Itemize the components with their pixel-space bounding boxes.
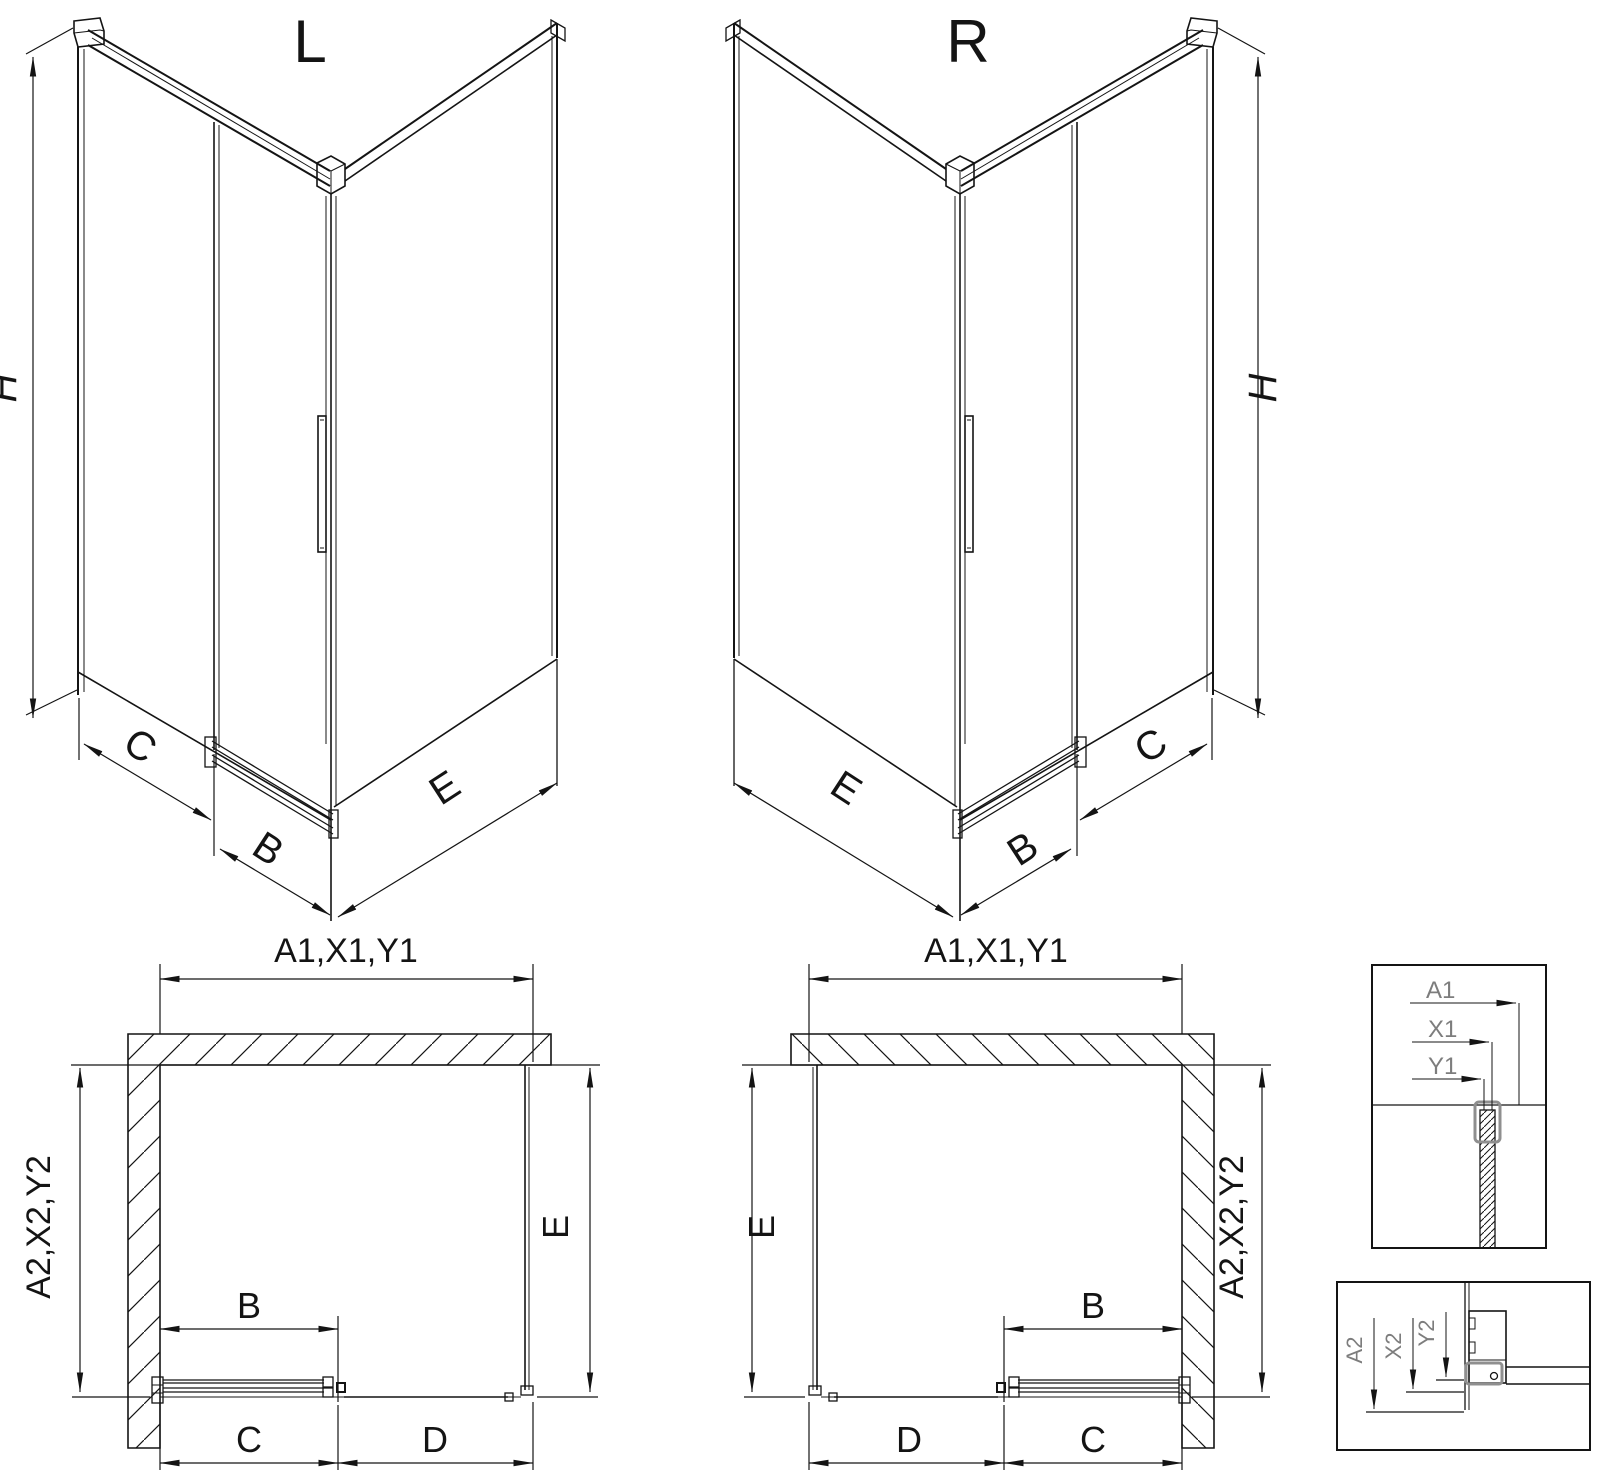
iso-left-side-label: C (116, 720, 164, 773)
plan-view-right: A1,X1,Y1 E A2,X2,Y2 B D C (741, 932, 1271, 1470)
plan-left-fixed-label: C (236, 1419, 262, 1460)
iso-right-side-label: C (1127, 720, 1175, 773)
detail-x1-label: X1 (1428, 1016, 1457, 1043)
detail-a1-label: A1 (1426, 977, 1455, 1004)
plan-right-width-label: A1,X1,Y1 (924, 932, 1068, 970)
plan-left-width-label: A1,X1,Y1 (274, 932, 418, 970)
plan-left-door-label: B (237, 1285, 261, 1326)
detail-width-inset: A1 X1 Y1 (1372, 965, 1546, 1248)
iso-left-height-label: H (0, 373, 25, 402)
detail-x2-label: X2 (1381, 1333, 1406, 1360)
detail-y1-label: Y1 (1428, 1053, 1457, 1080)
iso-left-title: L (293, 8, 326, 75)
detail-a2-label: A2 (1342, 1337, 1367, 1364)
plan-right-return-label: E (741, 1215, 782, 1239)
roller-wheel (1491, 1373, 1498, 1380)
plan-right-fixed-label: C (1080, 1419, 1106, 1460)
iso-right-height-label: H (1241, 373, 1285, 402)
iso-view-left: L H C B E (0, 8, 565, 921)
plan-right-depth-label: A2,X2,Y2 (1213, 1155, 1251, 1299)
plan-view-left: A1,X1,Y1 A2,X2,Y2 E B C D (20, 932, 600, 1470)
plan-left-opening-label: D (422, 1419, 448, 1460)
iso-right-return-label: E (823, 762, 869, 813)
iso-left-door-label: B (245, 823, 291, 874)
plan-right-door-label: B (1081, 1285, 1105, 1326)
plan-left-return-label: E (535, 1215, 576, 1239)
technical-drawing-page: L H C B E R H C B E A1,X1,Y1 A2,X2,Y2 E … (0, 0, 1600, 1474)
iso-right-title: R (946, 8, 989, 75)
detail-frame (1337, 1282, 1590, 1450)
plan-left-depth-label: A2,X2,Y2 (20, 1155, 58, 1299)
iso-view-right: R H C B E (726, 8, 1285, 921)
detail-depth-inset: A2 X2 Y2 (1337, 1282, 1590, 1450)
detail-width-dims (1410, 1003, 1519, 1110)
shower-enclosure-dimension-diagram: L H C B E R H C B E A1,X1,Y1 A2,X2,Y2 E … (0, 0, 1600, 1474)
iso-right-door-label: B (1000, 823, 1046, 874)
detail-y2-label: Y2 (1414, 1320, 1439, 1347)
iso-left-return-label: E (422, 762, 468, 813)
detail-frame (1372, 965, 1546, 1248)
plan-right-opening-label: D (896, 1419, 922, 1460)
glass-section-hatched (1480, 1110, 1495, 1248)
